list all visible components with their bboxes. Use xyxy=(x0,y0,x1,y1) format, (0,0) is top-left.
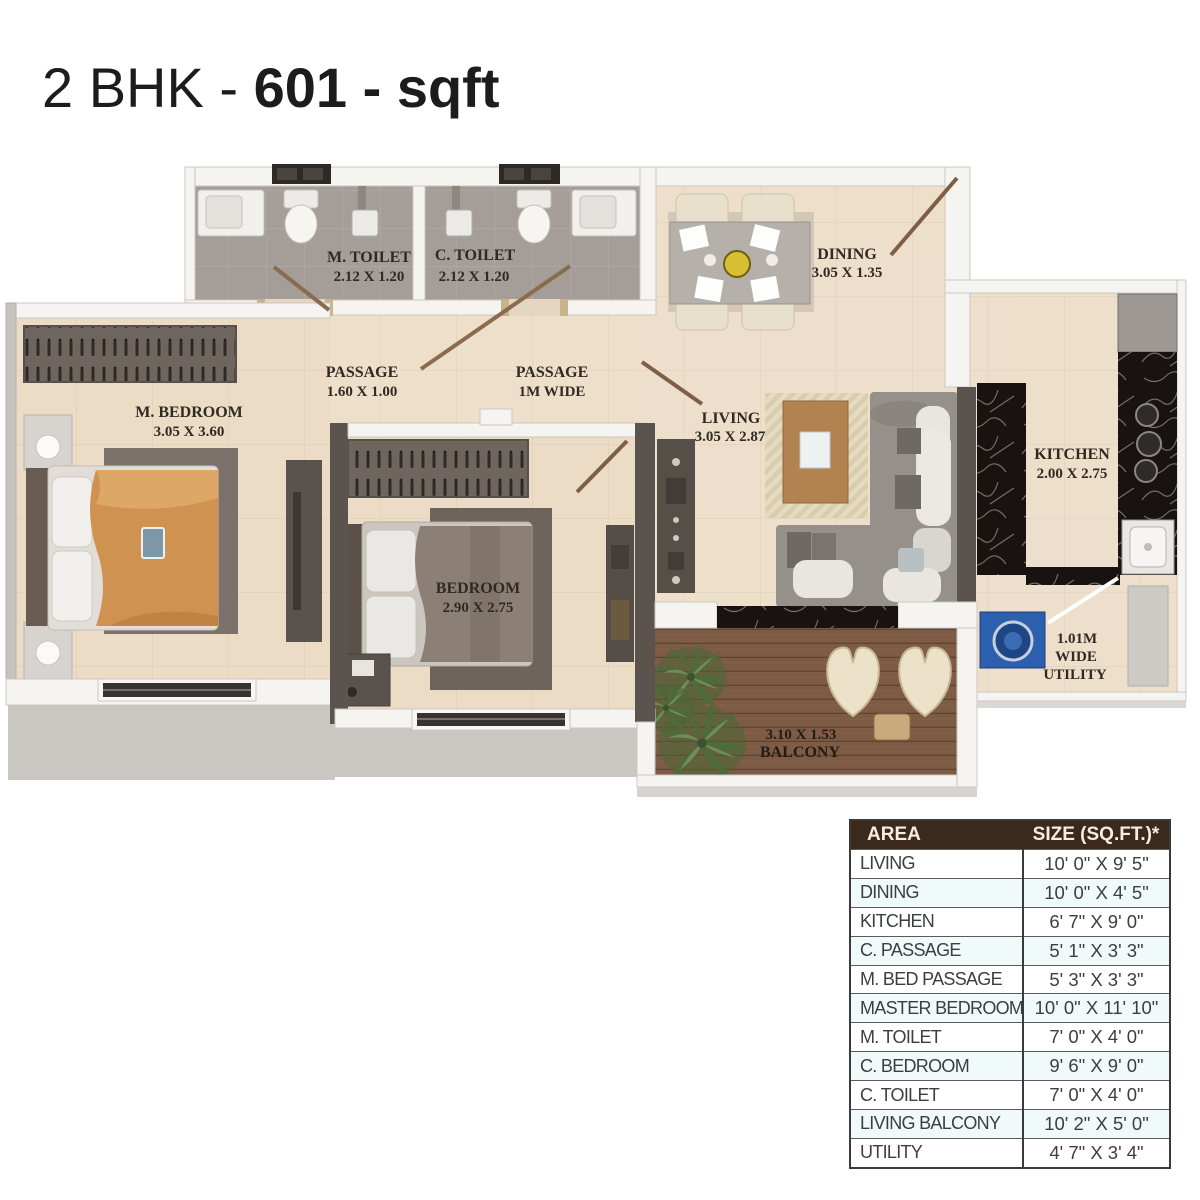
svg-text:PASSAGE: PASSAGE xyxy=(326,364,399,381)
svg-text:BEDROOM: BEDROOM xyxy=(436,580,520,597)
svg-text:DINING: DINING xyxy=(817,246,877,263)
svg-text:LIVING: LIVING xyxy=(702,410,761,427)
svg-text:2.00 X 2.75: 2.00 X 2.75 xyxy=(1037,466,1108,482)
svg-text:UTILITY: UTILITY xyxy=(1043,667,1107,683)
svg-text:C. TOILET: C. TOILET xyxy=(435,247,516,264)
svg-text:2.12 X 1.20: 2.12 X 1.20 xyxy=(439,269,510,285)
svg-text:M. BEDROOM: M. BEDROOM xyxy=(135,404,243,421)
svg-text:KITCHEN: KITCHEN xyxy=(1034,446,1110,463)
svg-text:1.60 X 1.00: 1.60 X 1.00 xyxy=(327,384,398,400)
svg-text:1.01M: 1.01M xyxy=(1057,631,1097,647)
svg-text:3.05 X 1.35: 3.05 X 1.35 xyxy=(812,265,883,281)
svg-text:3.05 X 3.60: 3.05 X 3.60 xyxy=(154,424,225,440)
svg-text:2.12 X 1.20: 2.12 X 1.20 xyxy=(334,269,405,285)
svg-text:M. TOILET: M. TOILET xyxy=(327,249,411,266)
svg-text:PASSAGE: PASSAGE xyxy=(516,364,589,381)
svg-text:3.05 X 2.87: 3.05 X 2.87 xyxy=(695,429,766,445)
svg-text:WIDE: WIDE xyxy=(1055,649,1097,665)
svg-text:1M WIDE: 1M WIDE xyxy=(519,384,586,400)
svg-text:3.10 X 1.53: 3.10 X 1.53 xyxy=(766,727,837,743)
svg-text:BALCONY: BALCONY xyxy=(760,744,840,761)
svg-text:2.90 X 2.75: 2.90 X 2.75 xyxy=(443,600,514,616)
